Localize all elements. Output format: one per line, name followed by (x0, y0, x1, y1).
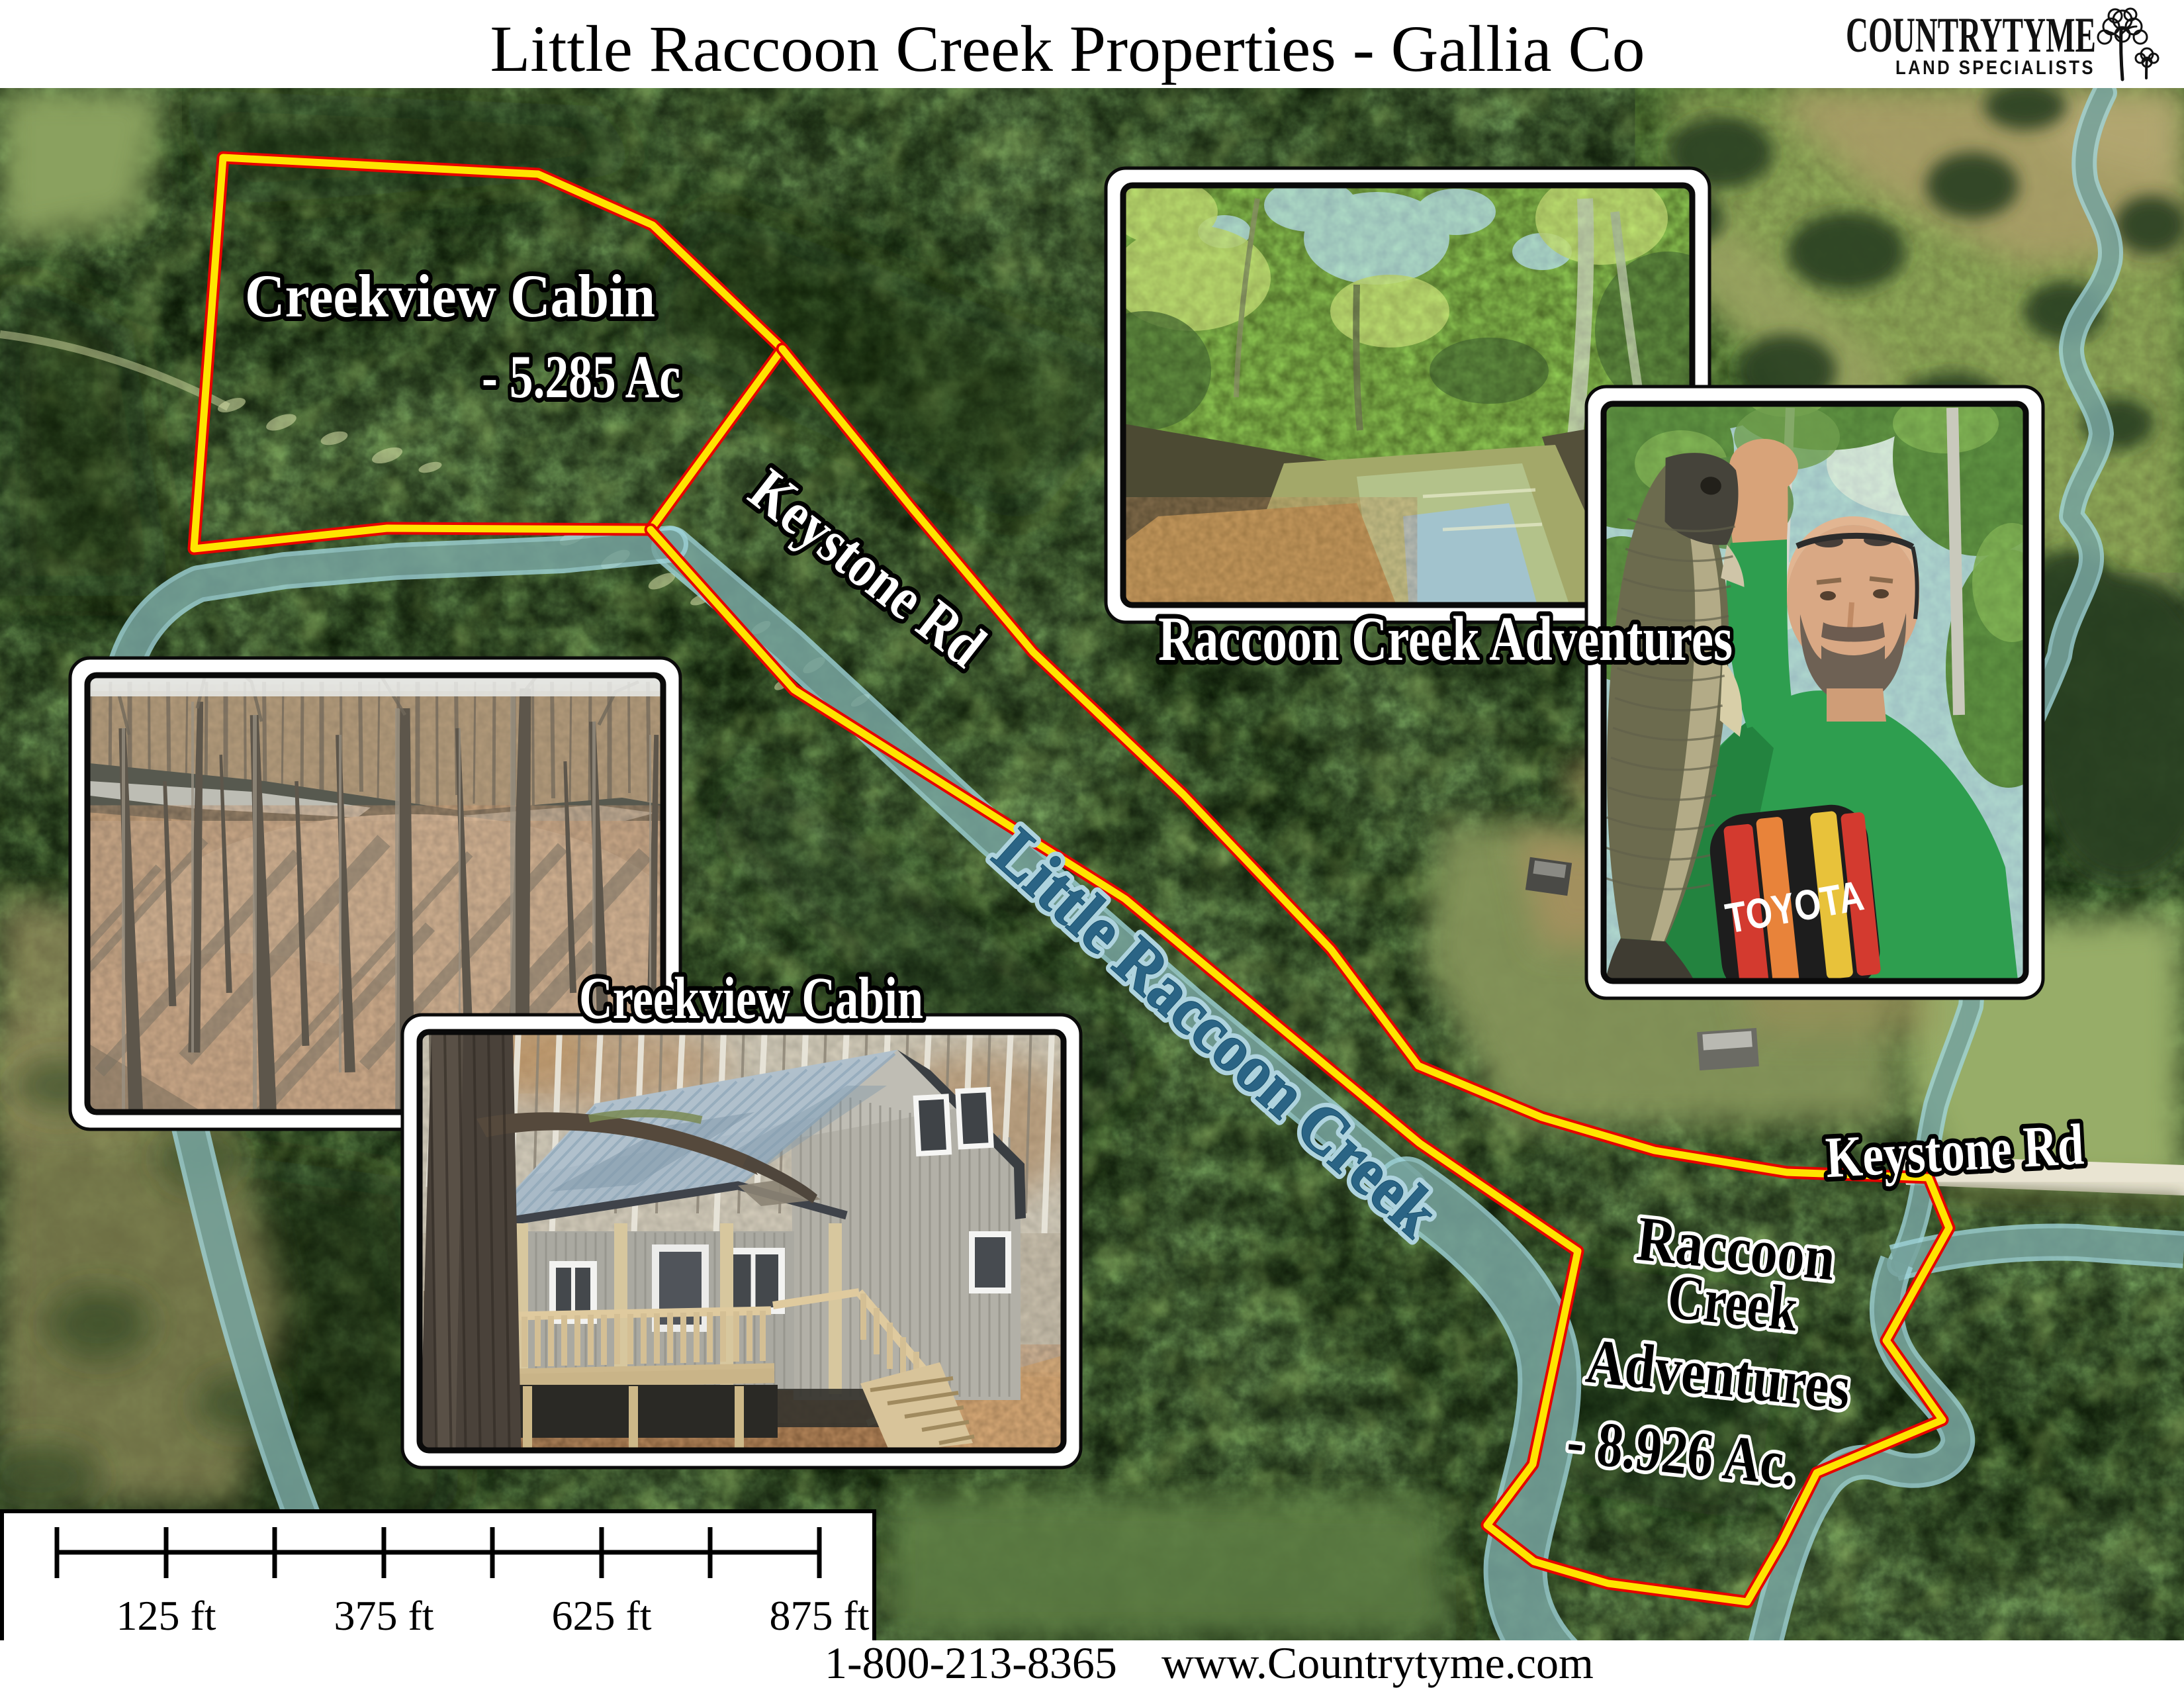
svg-text:Little Raccoon Creek Propertie: Little Raccoon Creek Properties - Gallia… (490, 12, 1645, 85)
svg-text:625 ft: 625 ft (551, 1592, 651, 1639)
svg-text:COUNTRYTYME: COUNTRYTYME (1846, 8, 2096, 63)
svg-text:Raccoon Creek Adventures: Raccoon Creek Adventures (1158, 604, 1733, 674)
svg-text:125 ft: 125 ft (116, 1592, 216, 1639)
svg-text:LAND SPECIALISTS: LAND SPECIALISTS (1895, 57, 2095, 79)
svg-text:Creekview Cabin: Creekview Cabin (579, 966, 923, 1031)
svg-text:Creekview Cabin: Creekview Cabin (245, 262, 655, 330)
svg-text:Creek: Creek (1664, 1260, 1801, 1344)
svg-text:Keystone Rd: Keystone Rd (1824, 1113, 2085, 1190)
svg-text:1-800-213-8365: 1-800-213-8365 (825, 1638, 1117, 1688)
svg-text:375 ft: 375 ft (334, 1592, 433, 1639)
svg-text:www.Countrytyme.com: www.Countrytyme.com (1161, 1638, 1594, 1688)
svg-text:875 ft: 875 ft (769, 1592, 869, 1639)
svg-text:- 5.285 Ac: - 5.285 Ac (482, 343, 680, 410)
